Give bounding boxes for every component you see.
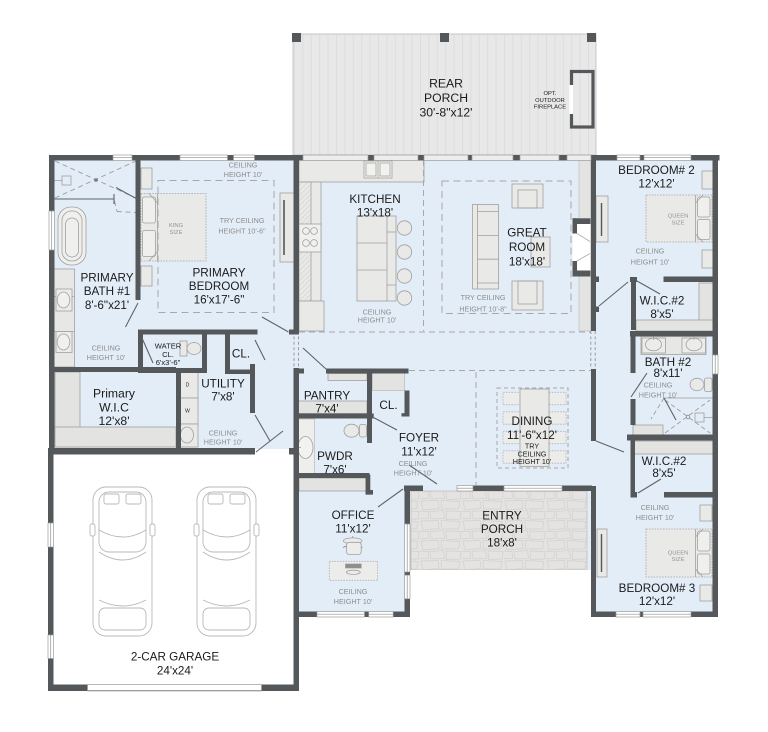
svg-text:24'x24': 24'x24' bbox=[157, 664, 193, 677]
svg-text:8'x5': 8'x5' bbox=[650, 308, 673, 321]
svg-text:UTILITY: UTILITY bbox=[201, 377, 245, 390]
svg-text:CEILING: CEILING bbox=[636, 247, 665, 256]
svg-text:CEILING: CEILING bbox=[399, 459, 428, 468]
svg-text:ENTRY: ENTRY bbox=[482, 509, 522, 522]
svg-text:HEIGHT 10': HEIGHT 10' bbox=[358, 316, 397, 325]
svg-text:DINING: DINING bbox=[512, 415, 553, 428]
svg-text:HEIGHT 10': HEIGHT 10' bbox=[513, 457, 552, 466]
svg-text:PRIMARY: PRIMARY bbox=[192, 267, 245, 280]
svg-text:KITCHEN: KITCHEN bbox=[349, 193, 400, 206]
svg-text:12'x12': 12'x12' bbox=[638, 178, 674, 191]
svg-text:HEIGHT 10': HEIGHT 10' bbox=[636, 513, 675, 522]
svg-text:CEILING: CEILING bbox=[339, 587, 368, 596]
svg-text:CEILING: CEILING bbox=[92, 344, 121, 353]
svg-text:HEIGHT 10': HEIGHT 10' bbox=[639, 390, 678, 399]
svg-text:HEIGHT 10': HEIGHT 10' bbox=[334, 597, 373, 606]
svg-text:REAR: REAR bbox=[429, 77, 463, 91]
svg-text:HEIGHT 10': HEIGHT 10' bbox=[394, 468, 433, 477]
svg-text:HEIGHT 10': HEIGHT 10' bbox=[224, 170, 263, 179]
svg-text:11'x12': 11'x12' bbox=[401, 445, 436, 458]
svg-text:7'x6': 7'x6' bbox=[323, 463, 346, 476]
svg-text:18'x18': 18'x18' bbox=[509, 255, 545, 268]
svg-text:OUTDOOR: OUTDOOR bbox=[535, 98, 565, 104]
svg-text:TRY CEILING: TRY CEILING bbox=[461, 293, 506, 302]
svg-text:SIZE: SIZE bbox=[672, 557, 685, 563]
svg-text:HEIGHT 10': HEIGHT 10' bbox=[631, 258, 670, 267]
svg-text:CEILING: CEILING bbox=[229, 161, 258, 170]
svg-text:PRIMARY: PRIMARY bbox=[80, 272, 133, 285]
svg-text:GREAT: GREAT bbox=[507, 227, 546, 240]
svg-text:30'-8"x12': 30'-8"x12' bbox=[419, 105, 472, 119]
svg-text:ROOM: ROOM bbox=[509, 241, 545, 254]
svg-text:OFFICE: OFFICE bbox=[332, 509, 375, 522]
svg-text:CEILING: CEILING bbox=[209, 428, 238, 437]
svg-text:CL.: CL. bbox=[379, 399, 397, 412]
svg-text:2-CAR GARAGE: 2-CAR GARAGE bbox=[131, 651, 220, 664]
svg-text:D: D bbox=[186, 383, 190, 389]
svg-text:BEDROOM: BEDROOM bbox=[189, 280, 249, 293]
svg-text:QUEEN: QUEEN bbox=[668, 214, 689, 220]
svg-text:11'-6"x12': 11'-6"x12' bbox=[507, 429, 557, 442]
svg-text:OPT.: OPT. bbox=[544, 91, 557, 97]
svg-text:BATH #1: BATH #1 bbox=[84, 285, 131, 298]
svg-text:CEILING: CEILING bbox=[641, 503, 670, 512]
svg-text:FIREPLACE: FIREPLACE bbox=[534, 105, 566, 111]
svg-text:HEIGHT 10'-6": HEIGHT 10'-6" bbox=[218, 226, 266, 235]
svg-text:SIZE: SIZE bbox=[672, 220, 685, 226]
svg-text:HEIGHT 10'-8": HEIGHT 10'-8" bbox=[459, 304, 507, 313]
svg-text:18'x8': 18'x8' bbox=[487, 537, 517, 550]
svg-text:TRY CEILING: TRY CEILING bbox=[220, 216, 265, 225]
svg-text:8'x5': 8'x5' bbox=[652, 467, 675, 480]
svg-text:PORCH: PORCH bbox=[424, 91, 468, 105]
svg-text:CL.: CL. bbox=[232, 348, 250, 361]
svg-text:12'x12': 12'x12' bbox=[639, 595, 675, 608]
svg-text:11'x12': 11'x12' bbox=[335, 522, 370, 535]
svg-text:8'x11': 8'x11' bbox=[654, 367, 683, 380]
svg-text:HEIGHT 10': HEIGHT 10' bbox=[87, 353, 126, 362]
svg-text:12'x8': 12'x8' bbox=[98, 414, 129, 428]
svg-text:13'x18': 13'x18' bbox=[357, 206, 393, 219]
svg-text:PANTRY: PANTRY bbox=[304, 390, 351, 403]
svg-text:CEILING: CEILING bbox=[644, 380, 673, 389]
svg-text:QUEEN: QUEEN bbox=[668, 551, 689, 557]
svg-text:8'-6"x21': 8'-6"x21' bbox=[85, 299, 129, 312]
svg-text:W.I.C.#2: W.I.C.#2 bbox=[640, 294, 685, 307]
svg-text:7'x4': 7'x4' bbox=[315, 402, 338, 415]
svg-text:PORCH: PORCH bbox=[481, 523, 523, 536]
svg-text:BEDROOM# 2: BEDROOM# 2 bbox=[618, 164, 695, 177]
svg-text:W.I.C: W.I.C bbox=[99, 400, 129, 414]
svg-text:BEDROOM# 3: BEDROOM# 3 bbox=[619, 582, 696, 595]
svg-text:6'x3'-6": 6'x3'-6" bbox=[156, 358, 181, 367]
svg-text:Primary: Primary bbox=[93, 386, 136, 400]
svg-text:PWDR: PWDR bbox=[317, 450, 353, 463]
svg-text:W: W bbox=[185, 409, 190, 415]
svg-text:SIZE: SIZE bbox=[170, 230, 183, 236]
svg-text:16'x17'-6": 16'x17'-6" bbox=[194, 294, 245, 307]
svg-text:7'x8': 7'x8' bbox=[211, 391, 234, 404]
svg-text:HEIGHT 10': HEIGHT 10' bbox=[204, 437, 243, 446]
svg-text:KING: KING bbox=[169, 223, 184, 229]
svg-text:FOYER: FOYER bbox=[399, 432, 439, 445]
